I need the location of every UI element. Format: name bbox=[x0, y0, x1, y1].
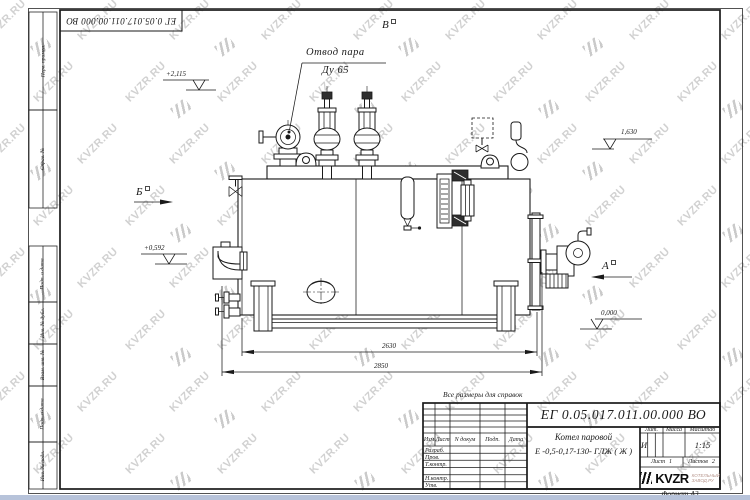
col-izm: Изм bbox=[423, 433, 435, 446]
col-podp: Подп. bbox=[480, 433, 505, 446]
reference-note: Все размеры для справок bbox=[443, 391, 523, 399]
col-ndokum: N докум bbox=[450, 433, 480, 446]
boiler-shell bbox=[238, 179, 530, 315]
feed-elbow-assembly bbox=[213, 242, 247, 279]
callout-steam-outlet: Отвод пара bbox=[306, 48, 365, 59]
bottom-edge-strip bbox=[0, 495, 750, 500]
margin-label-perv-primen: Перв. примен. bbox=[29, 12, 57, 110]
sight-glass-2 bbox=[461, 180, 474, 221]
col-data: Дата bbox=[505, 433, 527, 446]
view-label-v: В bbox=[382, 19, 396, 31]
dimension-2630: 2630 bbox=[369, 343, 409, 350]
sight-glass-1 bbox=[437, 174, 452, 228]
elevation-0592: +0,592 bbox=[144, 245, 164, 252]
front-nozzles bbox=[216, 292, 241, 318]
kvzr-subtitle: КОТЕЛЬНЫЙ ЗАВОД.РУ bbox=[692, 473, 720, 483]
view-mark bbox=[391, 19, 396, 24]
titleblock-product-code: Е -0,5-0,17-130- ГЛЖ ( Ж ) bbox=[527, 444, 640, 458]
row-prov: Пров. bbox=[425, 455, 439, 461]
drawing-sheet: KVZR.RUKVZR.RUKVZR.RUKVZR.RUKVZR.RUKVZR.… bbox=[0, 0, 750, 500]
mass-label: Масса bbox=[663, 427, 685, 433]
margin-label-vzam-inv: Взам. инв. № bbox=[29, 344, 57, 386]
callout-dn65: Ду 65 bbox=[322, 66, 349, 77]
row-razrab: Разраб. bbox=[425, 448, 444, 454]
titleblock-doc-number: ЕГ 0.05.017.011.00.000 ВО bbox=[527, 403, 720, 427]
row-utv: Утв. bbox=[425, 483, 437, 489]
kvzr-logo-icon bbox=[640, 472, 652, 484]
scale-value: 1:15 bbox=[685, 433, 720, 457]
row-nkontr: Н.контр. bbox=[425, 476, 448, 482]
kvzr-brand: KVZR bbox=[655, 471, 688, 486]
manometer-siphon bbox=[511, 122, 528, 171]
view-mark bbox=[611, 260, 616, 265]
margin-label-sprav-no: Справ. № bbox=[29, 110, 57, 208]
titleblock-product-name: Котел паровой bbox=[527, 430, 640, 444]
elevation-0000: 0,000 bbox=[601, 310, 617, 317]
view-label-a: А bbox=[602, 260, 616, 272]
sheet-cell: Лист1 bbox=[640, 457, 683, 467]
steam-dome-platform bbox=[267, 166, 508, 179]
rear-pump-unit bbox=[541, 228, 591, 288]
row-tkontr: Т.контр. bbox=[425, 462, 447, 468]
view-mark bbox=[145, 186, 150, 191]
dimension-2850: 2850 bbox=[361, 363, 401, 370]
margin-label-podp-data-2: Подп. и дата bbox=[29, 386, 57, 442]
margin-label-podp-data-1: Подп. и дата bbox=[29, 246, 57, 302]
gauge-phantom-outline bbox=[472, 118, 493, 138]
view-label-b: Б bbox=[136, 186, 150, 198]
flipped-doc-number-box: ЕГ 0.05.017.011.00.000 ВО bbox=[60, 10, 182, 31]
flipped-doc-number: ЕГ 0.05.017.011.00.000 ВО bbox=[66, 16, 176, 25]
col-list: Лист bbox=[435, 433, 450, 446]
small-top-valve bbox=[476, 138, 488, 152]
elevation-2115: +2,115 bbox=[166, 71, 186, 78]
elevation-1630: 1,630 bbox=[621, 129, 637, 136]
boiler-drawing bbox=[213, 86, 591, 331]
company-cell: KVZR КОТЕЛЬНЫЙ ЗАВОД.РУ bbox=[640, 467, 720, 489]
margin-label-inv-dubl: Инв. № дубл. bbox=[29, 302, 57, 344]
lit-value: И bbox=[640, 433, 648, 457]
margin-label-inv-podl: Инв. № подл. bbox=[29, 442, 57, 489]
sheets-cell: Листов2 bbox=[683, 457, 720, 467]
steam-outlet-valve bbox=[259, 125, 302, 166]
